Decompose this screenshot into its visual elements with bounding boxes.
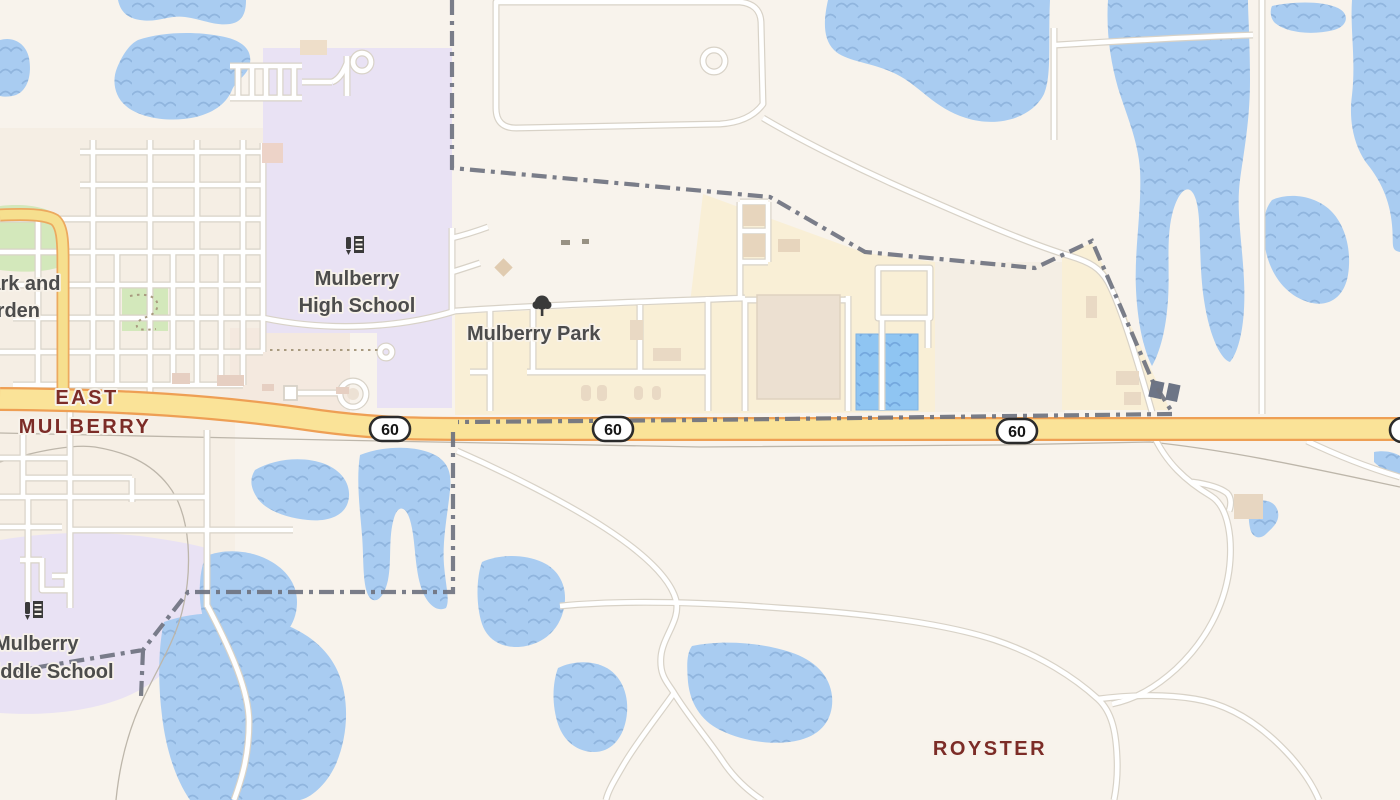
poi-label-garden-line2[interactable]: Garden — [0, 300, 40, 322]
route-shield: 60 — [370, 417, 410, 441]
school-icon — [25, 601, 43, 620]
route-shield-number: 60 — [604, 422, 622, 439]
place-label-east-mulberry-line1: EAST — [55, 387, 118, 409]
route-shield-number: 60 — [1008, 424, 1026, 441]
map-canvas[interactable]: 60 60 60 60 Park and Garden Mulberry Hig… — [0, 0, 1400, 800]
poi-label-high-school-line2[interactable]: High School — [299, 295, 416, 317]
route-shield: 60 — [593, 417, 633, 441]
middle-school-marker[interactable] — [25, 601, 43, 620]
park-pond — [856, 334, 918, 410]
poi-label-middle-school-line2[interactable]: Middle School — [0, 661, 114, 683]
large-building — [757, 295, 840, 399]
route-shield: 60 — [997, 419, 1037, 443]
place-label-royster: ROYSTER — [933, 738, 1047, 760]
poi-label-high-school-line1[interactable]: Mulberry — [315, 268, 400, 290]
poi-label-mulberry-park[interactable]: Mulberry Park — [467, 323, 601, 345]
road-key-end — [284, 386, 297, 400]
poi-label-middle-school-line1[interactable]: Mulberry — [0, 633, 79, 655]
street-map[interactable]: 60 60 60 60 Park and Garden Mulberry Hig… — [0, 0, 1400, 800]
place-label-east-mulberry-line2: MULBERRY — [19, 416, 152, 438]
route-shield-number: 60 — [381, 422, 399, 439]
school-icon — [346, 236, 364, 255]
poi-label-garden-line1[interactable]: Park and — [0, 273, 60, 295]
high-school-marker[interactable] — [346, 236, 364, 255]
